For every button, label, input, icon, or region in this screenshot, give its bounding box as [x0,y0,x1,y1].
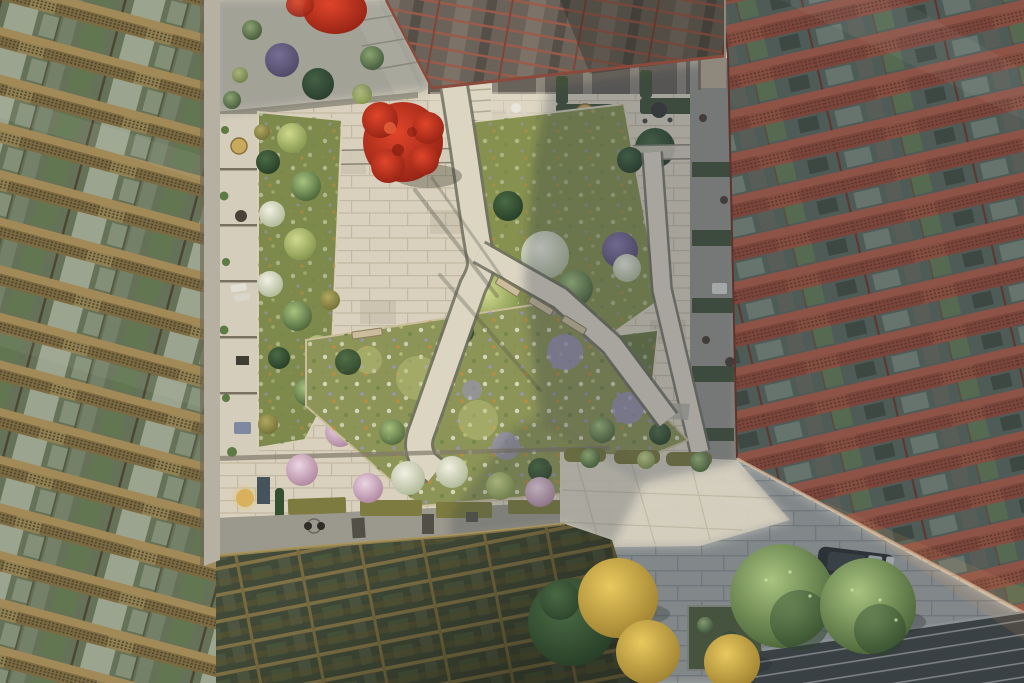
courtyard-aerial-render: Aerial view straight down into a residen… [0,0,1024,683]
patio-bench [236,356,249,365]
facade-edge-pier [204,0,220,566]
glowing-lamp [236,489,254,507]
patio-mat [234,422,251,434]
left-building-facade [0,0,220,683]
render-stage: Aerial view straight down into a residen… [0,0,1024,683]
cafe-table [511,103,521,113]
patio-table-dark [235,210,247,222]
doorway [257,477,270,504]
patio-table [231,138,247,154]
